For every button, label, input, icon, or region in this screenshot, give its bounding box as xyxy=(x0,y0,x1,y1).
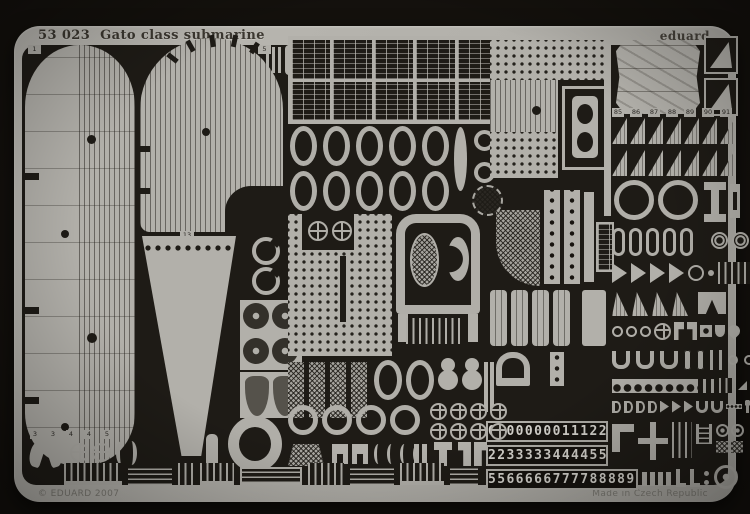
gusset-tab-row: 85 86 87 88 89 90 91 xyxy=(612,108,732,117)
comb-grate-part xyxy=(200,463,234,485)
notched-block-part xyxy=(332,444,348,464)
keyhole-part xyxy=(745,400,750,413)
mini-ring-part xyxy=(728,355,738,365)
l-bracket-part xyxy=(690,469,700,487)
part-tab: 86 xyxy=(630,108,642,117)
lined-grate-part xyxy=(240,467,302,485)
ladder-part xyxy=(696,424,712,444)
oval-frame-part xyxy=(374,360,402,400)
mask-hole xyxy=(577,132,593,152)
mini-chock-part xyxy=(711,401,723,413)
rivet-strip-part xyxy=(544,190,560,284)
propeller-disc xyxy=(243,303,269,329)
valve-wheel-part xyxy=(450,403,467,420)
triangle-part xyxy=(710,42,732,68)
shield-part xyxy=(245,376,269,416)
dumbbell-part xyxy=(697,350,704,370)
dotted-disc-part xyxy=(716,424,729,437)
small-rod-part xyxy=(272,47,275,73)
valve-wheel-part xyxy=(470,423,487,440)
flag-row xyxy=(612,262,750,284)
panel-notch xyxy=(302,214,354,250)
target-ring-part xyxy=(714,465,738,489)
tiny-triangle-part xyxy=(738,381,747,390)
gusset-part xyxy=(702,150,717,176)
plain-plate-part xyxy=(582,290,606,346)
valve-wheel-part xyxy=(470,403,487,420)
capsule-part xyxy=(680,228,693,256)
i-beam-web xyxy=(711,190,719,214)
mask-hole xyxy=(577,104,593,124)
gear-wheel-part xyxy=(308,221,328,241)
deck-notch xyxy=(166,52,179,63)
valve-wheel-part xyxy=(490,403,507,420)
oval-frame-part xyxy=(356,171,383,211)
valve-wheel-part xyxy=(450,423,467,440)
grating-cell xyxy=(375,40,413,79)
tiny-flag-part xyxy=(672,401,681,413)
riveted-panel-wide xyxy=(490,40,606,80)
perforated-panel xyxy=(288,214,392,356)
blank-plate-part xyxy=(658,472,663,486)
part-tab: 3 xyxy=(48,430,58,439)
valve-wheel-part xyxy=(490,423,507,440)
angle-bracket-part xyxy=(687,322,697,340)
deck-hole xyxy=(87,135,96,144)
deck-part-round xyxy=(140,38,283,232)
dumbbell-part xyxy=(684,350,691,370)
sail-part xyxy=(672,292,688,316)
mini-ring-part xyxy=(612,326,623,337)
sail-part xyxy=(652,292,668,316)
pin-part xyxy=(710,350,713,370)
oval-frame-part xyxy=(389,126,416,166)
edge-strip-part xyxy=(604,44,611,216)
v-notch-part xyxy=(698,292,726,314)
valve-wheel-part xyxy=(654,323,671,340)
gusset-part xyxy=(684,150,699,176)
sail-group xyxy=(612,292,688,316)
made-in-text: Made in Czech Republic xyxy=(592,489,708,500)
deck-hole xyxy=(87,333,97,343)
part-tab: 90 xyxy=(702,108,714,117)
scallop-strip-part xyxy=(612,379,698,393)
capsule-part xyxy=(663,228,676,256)
deck-slot xyxy=(140,146,150,152)
chock-group xyxy=(612,351,678,369)
panel-slit xyxy=(340,256,346,322)
capsule-part xyxy=(612,228,625,256)
sail-row xyxy=(612,292,700,316)
cross-horizontal xyxy=(638,438,668,444)
oval-frame-row xyxy=(290,171,449,211)
dotted-disc-part xyxy=(731,424,744,437)
flag-part xyxy=(612,263,627,283)
deck-hole xyxy=(202,128,210,136)
i-beam-part xyxy=(704,182,726,222)
rosette-part xyxy=(732,232,749,249)
triangle-cell xyxy=(704,36,738,74)
deck-slot xyxy=(25,397,39,404)
gusset-part xyxy=(612,150,627,176)
gusset-part xyxy=(720,118,735,144)
crescent-part xyxy=(447,237,469,281)
mini-grate-part xyxy=(719,378,733,393)
curved-rib-part xyxy=(126,441,137,465)
eyelet-part xyxy=(700,325,712,337)
oval-frame-part xyxy=(290,126,317,166)
blank-plate-row xyxy=(642,472,671,486)
photo-of-photoetch-fret: 53 023 Gato class submarine eduard © EDU… xyxy=(0,0,750,514)
planked-section xyxy=(490,80,558,132)
spade-part xyxy=(726,323,743,340)
riveted-panel-lower xyxy=(490,80,558,178)
louver-plate-part xyxy=(490,290,507,346)
gusset-part xyxy=(612,118,627,144)
grating-cell xyxy=(375,82,413,121)
deck-slot xyxy=(25,173,39,180)
pin-part xyxy=(719,350,722,370)
flag-part xyxy=(631,263,646,283)
gusset-part xyxy=(720,150,735,176)
pin-part xyxy=(703,379,706,393)
mini-ring-part xyxy=(640,326,651,337)
slotted-chip-part xyxy=(730,184,740,218)
gusset-row xyxy=(612,150,735,176)
gear-wheel-part xyxy=(332,221,352,241)
plain-strip-part xyxy=(584,192,594,282)
copyright-text: © EDUARD 2007 xyxy=(38,489,119,500)
louver-plate-part xyxy=(511,290,528,346)
figure8-bottom xyxy=(438,370,458,390)
mesh-square-part xyxy=(716,441,728,453)
plate-row xyxy=(490,290,570,346)
grating-cell xyxy=(292,82,330,121)
crossed-ring-part xyxy=(92,443,111,462)
large-ring-part xyxy=(614,180,654,220)
small-part-tab-row: 3 3 4 4 5 xyxy=(30,430,112,439)
oval-frame-part xyxy=(422,126,449,166)
draft-number-strip-3: 5566666777788889999 xyxy=(486,469,638,490)
gusset-row xyxy=(612,118,735,144)
part-tab: 5 xyxy=(258,45,271,54)
tower-frame-part xyxy=(396,214,480,314)
small-rod-part xyxy=(278,47,281,73)
chock-part xyxy=(612,351,630,369)
grating-cell xyxy=(333,82,371,121)
wheel-row xyxy=(430,423,507,440)
tower-deck-wedge xyxy=(142,236,236,456)
figure8-part xyxy=(462,358,482,400)
louver-plate-part xyxy=(553,290,570,346)
part-tab: 4 xyxy=(66,430,76,439)
blank-plate-part xyxy=(666,472,671,486)
mesh-square-part xyxy=(731,441,743,453)
blank-plate-part xyxy=(642,472,647,486)
valve-wheel-part xyxy=(430,403,447,420)
curved-rib-part xyxy=(374,444,383,464)
rosette-part xyxy=(711,232,728,249)
oval-frame-part xyxy=(356,126,383,166)
notched-block-part xyxy=(352,444,368,464)
sail-part xyxy=(632,292,648,316)
gusset-part xyxy=(648,118,663,144)
part-tab: 88 xyxy=(666,108,678,117)
rivet-strip-part xyxy=(564,190,580,284)
rung-comb-part xyxy=(406,318,464,344)
dotted-chip-part xyxy=(550,352,564,386)
grating-cell xyxy=(333,40,371,79)
t-plate-top xyxy=(434,442,452,450)
oval-frame-part xyxy=(290,171,317,211)
bar-strip-part xyxy=(718,262,750,284)
chock-part xyxy=(636,351,654,369)
grating-cell xyxy=(292,40,330,79)
mini-chock-part xyxy=(696,401,708,413)
small-ring-part xyxy=(688,265,704,281)
lined-grate-part xyxy=(350,467,394,485)
valve-wheel-part xyxy=(430,423,447,440)
part-tab: 1 xyxy=(28,45,41,54)
d-ring-part xyxy=(624,401,633,413)
comb-grate-part xyxy=(400,463,444,485)
dotted-bar-part xyxy=(726,404,742,409)
crossed-ring-part xyxy=(70,443,89,462)
blank-plate-part xyxy=(650,472,655,486)
pin-part xyxy=(414,444,419,464)
rivet-dot-part xyxy=(708,270,714,276)
l-plate-part xyxy=(458,442,471,466)
part-tab: 85 xyxy=(612,108,624,117)
spindle-part xyxy=(454,127,467,191)
figure8-part xyxy=(438,358,458,400)
chip-slot xyxy=(733,192,737,210)
large-ring-part xyxy=(658,180,698,220)
deck-notch xyxy=(185,40,195,53)
flag-part xyxy=(669,263,684,283)
large-ring-part xyxy=(228,416,282,472)
folded-plate-part xyxy=(616,40,700,114)
louver-plate-part xyxy=(532,290,549,346)
fret-code: 53 023 xyxy=(38,28,90,44)
triangle-part xyxy=(710,84,732,110)
flag-part xyxy=(650,263,665,283)
tiny-flag-part xyxy=(684,401,693,413)
grating-cell xyxy=(416,40,454,79)
hatch-ring-part xyxy=(356,405,386,435)
tiny-flag-part xyxy=(660,401,669,413)
deck-hole xyxy=(61,230,69,238)
tri-group xyxy=(660,401,693,413)
comb-grate-part xyxy=(178,463,196,485)
fret-name: Gato class submarine xyxy=(100,28,265,44)
curved-rib-part xyxy=(387,444,396,464)
cup-part xyxy=(715,325,725,337)
curved-rib-part xyxy=(400,444,409,464)
capsule-part xyxy=(646,228,659,256)
scallop-row xyxy=(612,378,747,393)
gusset-part xyxy=(684,118,699,144)
arch-part xyxy=(496,352,530,386)
small-rod-part xyxy=(266,47,269,73)
part-tab: 4 xyxy=(84,430,94,439)
part-tab: 5 xyxy=(102,430,112,439)
comb-grate-part xyxy=(308,463,344,485)
oval-frame-part xyxy=(323,171,350,211)
part-tab: 87 xyxy=(648,108,660,117)
cross-part xyxy=(638,422,668,460)
lined-grate-part xyxy=(128,467,172,485)
deck-cutout xyxy=(225,186,283,232)
sail-part xyxy=(612,292,628,316)
mask-plate xyxy=(572,96,598,158)
slat-grate-part xyxy=(672,422,692,458)
i-beam-flange xyxy=(704,214,726,222)
capsule-part xyxy=(629,228,642,256)
gusset-part xyxy=(630,118,645,144)
riveted-section xyxy=(490,132,558,178)
oval-frame-row xyxy=(290,126,449,166)
gusset-part xyxy=(702,118,717,144)
fret-cavity: 1 5 6 7 23 xyxy=(22,45,728,485)
mini-ring-group xyxy=(612,326,651,337)
gusset-part xyxy=(666,150,681,176)
lined-grate-part xyxy=(450,467,478,485)
pin-part xyxy=(711,379,714,393)
wheel-row xyxy=(430,403,507,420)
big-ring-row xyxy=(288,405,420,435)
mesh-oval-part xyxy=(410,233,439,287)
draft-number-strip-2: 2233333444455 xyxy=(486,445,608,466)
oval-frame-part xyxy=(323,126,350,166)
d-ring-part xyxy=(612,401,621,413)
frame-leg xyxy=(468,314,478,342)
i-beam-flange xyxy=(704,182,726,190)
mask-plate-frame xyxy=(562,86,608,170)
chock-part xyxy=(660,351,678,369)
capsule-group xyxy=(612,228,693,256)
oval-frame-part xyxy=(406,360,434,400)
d-ring-row xyxy=(612,400,750,413)
figure8-bottom xyxy=(462,370,482,390)
gusset-part xyxy=(648,150,663,176)
brass-fret-sheet: 53 023 Gato class submarine eduard © EDU… xyxy=(14,26,736,502)
angle-bracket-part xyxy=(674,322,684,340)
flag-group xyxy=(612,263,684,283)
hatch-ring-part xyxy=(390,405,420,435)
chock-row xyxy=(612,350,750,370)
rivet-dot-part xyxy=(704,471,709,476)
capsule-row xyxy=(612,228,749,256)
propeller-disc xyxy=(243,338,269,364)
keyhole-group xyxy=(745,400,750,413)
deck-slot xyxy=(140,188,150,194)
grating-panel-group xyxy=(288,36,500,124)
hatch-ring-part xyxy=(322,405,352,435)
comb-grate-part xyxy=(64,463,122,485)
corner-bracket-part xyxy=(612,424,634,452)
hatch-ring-part xyxy=(288,405,318,435)
gusset-part xyxy=(630,150,645,176)
pin-part xyxy=(422,444,427,464)
panel-hole xyxy=(532,106,541,115)
deck-part-long xyxy=(25,45,135,465)
block-notch xyxy=(357,454,363,464)
d-ring-part xyxy=(648,401,657,413)
mini-ring-part xyxy=(626,326,637,337)
rivet-dot-part xyxy=(704,480,709,485)
l-bracket-part xyxy=(676,469,686,487)
part-tab: 91 xyxy=(720,108,732,117)
fitting-row xyxy=(612,322,740,340)
d-ring-group xyxy=(612,401,657,413)
part-tab: 3 xyxy=(30,430,40,439)
gusset-part xyxy=(666,118,681,144)
mini-ring-part xyxy=(744,355,750,365)
part-tab: 89 xyxy=(684,108,696,117)
mesh-patch-part xyxy=(496,210,540,286)
grating-cell xyxy=(416,82,454,121)
oval-frame-part xyxy=(422,171,449,211)
d-ring-part xyxy=(636,401,645,413)
deck-slot xyxy=(25,307,39,314)
oval-frame-part xyxy=(389,171,416,211)
